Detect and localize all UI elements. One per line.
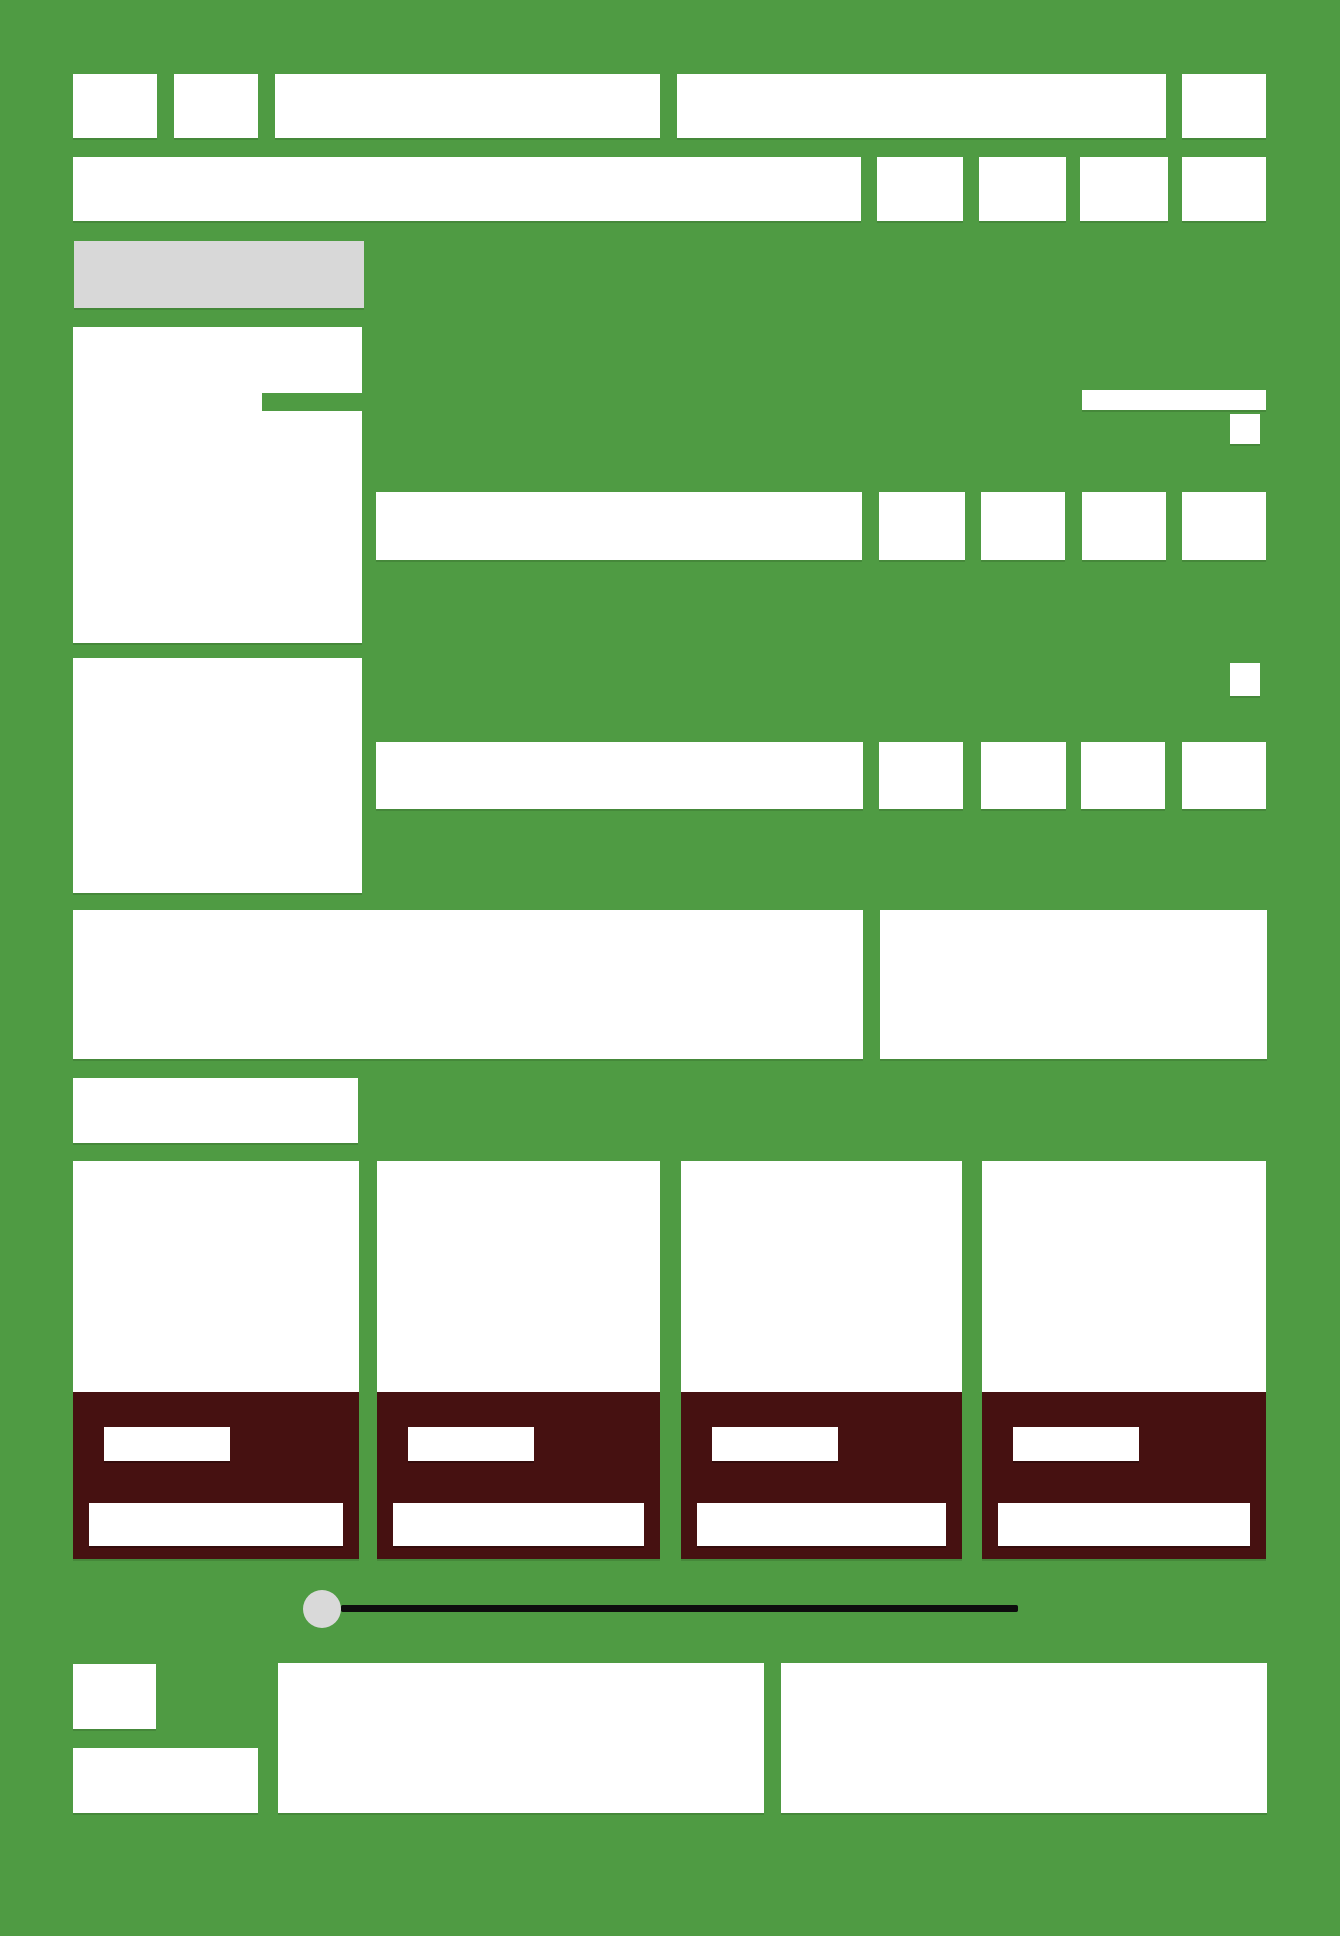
grid-card-4-footer [982, 1392, 1266, 1559]
panel-main [73, 910, 863, 1059]
header-title-bar[interactable] [677, 74, 1166, 138]
toolbar-button-3[interactable] [1080, 157, 1168, 221]
corner-badge-1[interactable] [1230, 414, 1260, 444]
toolbar-button-2[interactable] [979, 157, 1066, 221]
meta-bar [1082, 390, 1266, 410]
grid-card-1[interactable] [73, 1161, 359, 1559]
section-label-2 [73, 1078, 358, 1143]
list-row-2-button-4[interactable] [1182, 742, 1266, 809]
list-row-1[interactable] [376, 492, 862, 560]
grid-card-1-chip [104, 1427, 230, 1461]
grid-card-1-media [73, 1161, 359, 1392]
toolbar-button-1[interactable] [877, 157, 963, 221]
list-row-2-button-2[interactable] [981, 742, 1066, 809]
header-search-field[interactable] [275, 74, 660, 138]
header-block-c[interactable] [1182, 74, 1266, 138]
section-label [74, 241, 364, 308]
grid-card-3-chip [712, 1427, 838, 1461]
grid-card-2-action-bar[interactable] [393, 1503, 644, 1546]
header-block-b[interactable] [174, 74, 258, 138]
grid-card-2[interactable] [377, 1161, 660, 1559]
side-card-1-notch [262, 393, 362, 411]
grid-card-4-media [982, 1161, 1266, 1392]
grid-card-4-action-bar[interactable] [998, 1503, 1250, 1546]
slider-track[interactable] [341, 1605, 1018, 1612]
list-row-1-button-4[interactable] [1182, 492, 1266, 560]
side-card-2[interactable] [73, 658, 362, 893]
slider-handle[interactable] [303, 1590, 341, 1628]
page-canvas [0, 0, 1340, 1936]
list-row-2-button-1[interactable] [879, 742, 963, 809]
grid-card-2-chip [408, 1427, 534, 1461]
footer-panel-b [781, 1663, 1267, 1813]
corner-badge-2[interactable] [1230, 663, 1260, 696]
panel-side [880, 910, 1267, 1059]
footer-thumb-small[interactable] [73, 1664, 156, 1729]
grid-card-3-footer [681, 1392, 962, 1559]
grid-card-3-media [681, 1161, 962, 1392]
list-row-2[interactable] [376, 742, 863, 809]
grid-card-3-action-bar[interactable] [697, 1503, 946, 1546]
grid-card-2-media [377, 1161, 660, 1392]
list-row-1-button-1[interactable] [879, 492, 965, 560]
list-row-2-button-3[interactable] [1081, 742, 1165, 809]
list-row-1-button-3[interactable] [1082, 492, 1166, 560]
toolbar-button-4[interactable] [1182, 157, 1266, 221]
side-card-1[interactable] [73, 327, 362, 643]
toolbar-bar[interactable] [73, 157, 861, 221]
grid-card-4-chip [1013, 1427, 1139, 1461]
list-row-1-button-2[interactable] [981, 492, 1065, 560]
grid-card-1-footer [73, 1392, 359, 1559]
grid-card-4[interactable] [982, 1161, 1266, 1559]
header-block-a[interactable] [73, 74, 157, 138]
grid-card-3[interactable] [681, 1161, 962, 1559]
grid-card-2-footer [377, 1392, 660, 1559]
footer-panel-a [278, 1663, 764, 1813]
grid-card-1-action-bar[interactable] [89, 1503, 343, 1546]
footer-thumb-wide[interactable] [73, 1748, 258, 1813]
